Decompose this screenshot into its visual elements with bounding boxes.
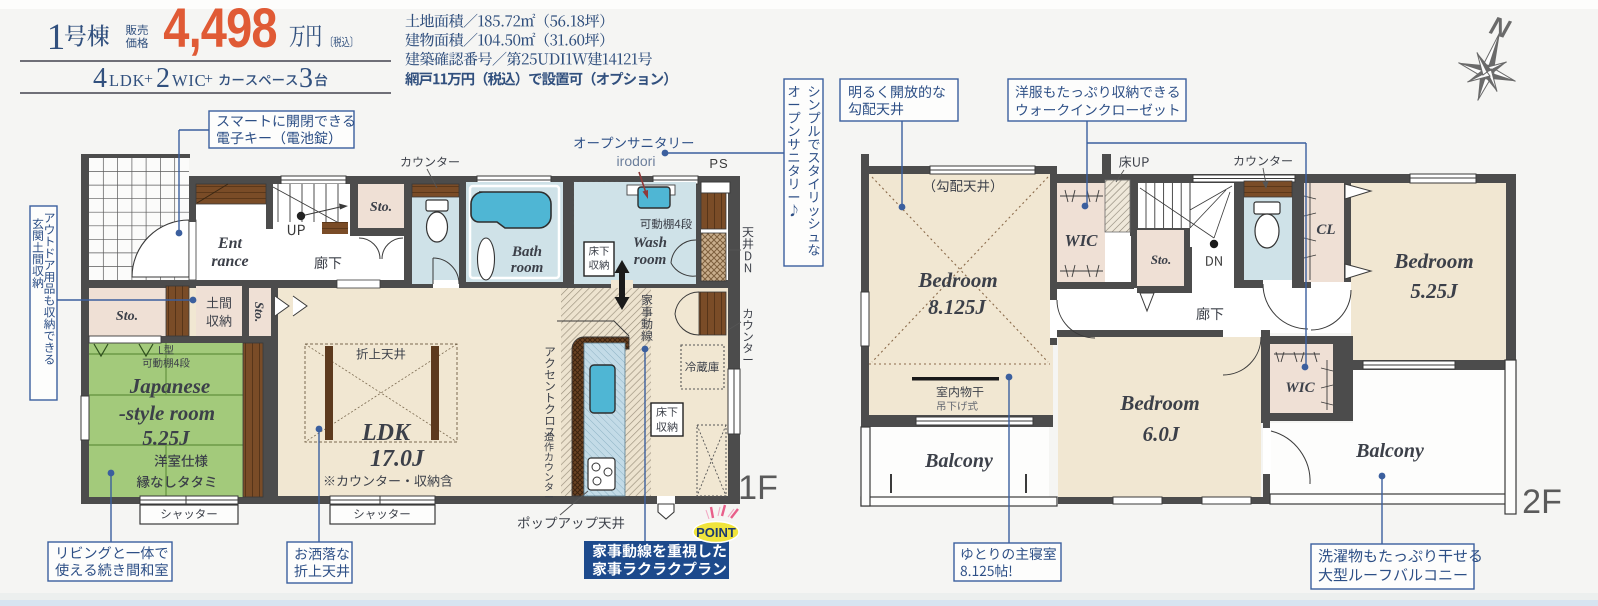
svg-text:Sto.: Sto. xyxy=(116,309,138,324)
svg-text:PS: PS xyxy=(709,156,728,171)
svg-text:Bedroom: Bedroom xyxy=(1119,391,1199,415)
svg-text:Bath: Bath xyxy=(511,244,542,260)
svg-text:Wash: Wash xyxy=(633,235,667,251)
svg-text:POINT: POINT xyxy=(696,525,736,540)
svg-text:WIC: WIC xyxy=(172,71,206,90)
svg-text:-style room: -style room xyxy=(119,401,215,425)
svg-text:WIC: WIC xyxy=(1064,231,1098,250)
svg-text:17.0J: 17.0J xyxy=(370,446,425,472)
svg-text:Bedroom: Bedroom xyxy=(1393,249,1473,273)
svg-text:2F: 2F xyxy=(1522,483,1562,521)
svg-text:Sto.: Sto. xyxy=(370,200,392,215)
svg-text:4: 4 xyxy=(93,63,107,94)
svg-text:2: 2 xyxy=(156,63,170,94)
svg-text:Japanese: Japanese xyxy=(129,374,211,398)
svg-text:6.0J: 6.0J xyxy=(1143,422,1181,446)
svg-text:rance: rance xyxy=(211,253,248,270)
svg-text:irodori: irodori xyxy=(617,153,656,169)
svg-text:8.125J: 8.125J xyxy=(928,295,987,319)
svg-text:room: room xyxy=(634,252,667,268)
svg-text:1F: 1F xyxy=(738,469,778,507)
svg-text:room: room xyxy=(511,260,544,276)
svg-text:+: + xyxy=(204,71,213,88)
svg-text:5.25J: 5.25J xyxy=(1410,279,1459,303)
svg-text:LDK: LDK xyxy=(361,420,412,446)
svg-text:4,498: 4,498 xyxy=(163,0,277,59)
svg-text:Sto.: Sto. xyxy=(252,302,267,323)
svg-text:+: + xyxy=(144,71,153,88)
svg-text:Bedroom: Bedroom xyxy=(917,268,997,292)
svg-text:Balcony: Balcony xyxy=(1355,440,1424,462)
svg-text:LDK: LDK xyxy=(109,71,145,90)
svg-text:WIC: WIC xyxy=(1285,380,1315,396)
svg-text:3: 3 xyxy=(299,63,313,94)
svg-text:Balcony: Balcony xyxy=(924,450,993,472)
svg-text:Sto.: Sto. xyxy=(1151,252,1172,267)
svg-text:1: 1 xyxy=(47,17,66,58)
svg-text:CL: CL xyxy=(1316,222,1335,238)
svg-text:5.25J: 5.25J xyxy=(142,426,191,450)
svg-text:Ent: Ent xyxy=(217,235,243,252)
